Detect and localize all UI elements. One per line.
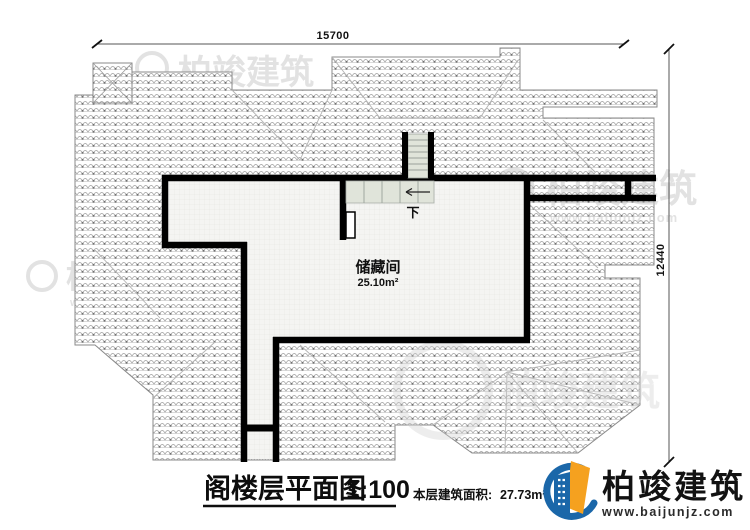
plan-title: 阁楼层平面图 (204, 473, 366, 504)
dimension-top: 15700 (92, 30, 629, 48)
company-name: 柏竣建筑 (602, 468, 746, 505)
dimension-right-value: 12440 (655, 243, 667, 276)
stair-shaft (408, 134, 428, 178)
floor-plan-drawing: 柏竣建筑 柏竣建筑 www.baijunjz.com (0, 0, 750, 530)
watermark-url: www.baijunjz.com (549, 210, 678, 225)
title-block: 阁楼层平面图 1:100 本层建筑面积: 27.73m² (203, 473, 547, 506)
dimension-top-value: 15700 (316, 30, 349, 42)
watermark-logo-icon (28, 262, 56, 290)
door-jamb-symbol (346, 212, 355, 238)
room-area-label: 25.10m² (358, 277, 399, 289)
watermark-name: 柏竣建筑 (500, 370, 660, 414)
floor-area-value: 27.73m² (500, 488, 547, 502)
stair-down-label: 下 (406, 205, 419, 220)
floor-plan-sheet: 柏竣建筑 柏竣建筑 www.baijunjz.com (0, 0, 750, 530)
company-url: www.baijunjz.com (601, 505, 734, 519)
chimney (93, 63, 132, 103)
room-name-label: 储藏间 (355, 258, 400, 276)
floor-area-label: 本层建筑面积: (413, 487, 492, 502)
plan-scale: 1:100 (346, 476, 410, 504)
company-logo-icon (547, 461, 594, 516)
company-logo: 柏竣建筑 www.baijunjz.com (547, 461, 746, 519)
